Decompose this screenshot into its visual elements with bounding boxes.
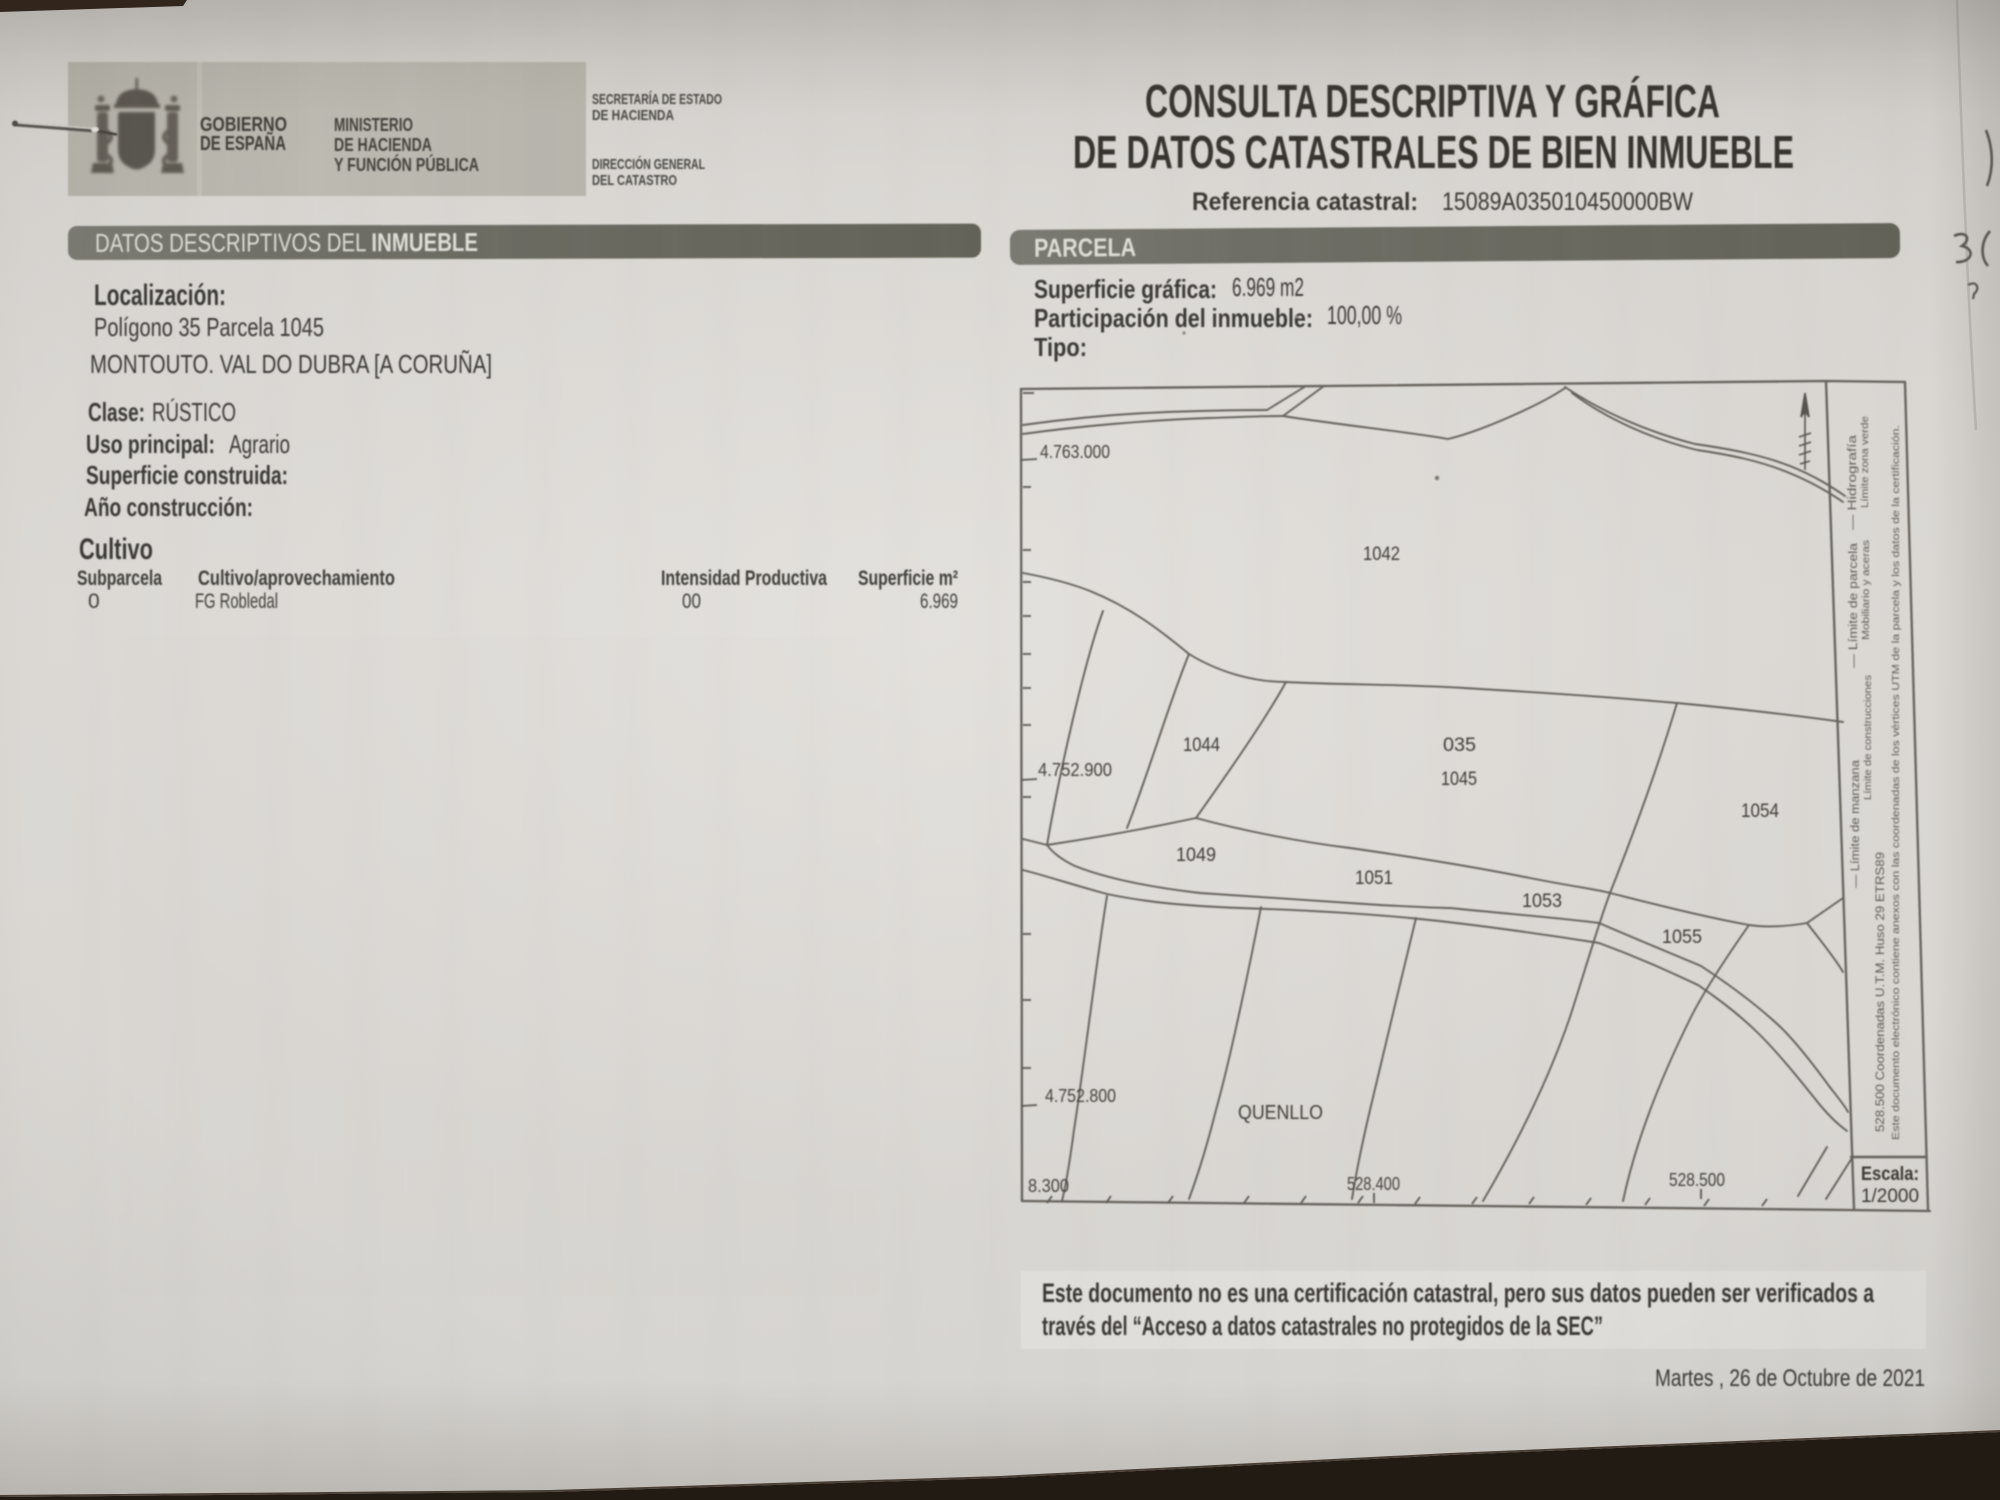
svg-text:MINISTERIO: MINISTERIO: [334, 115, 413, 135]
svg-text:1051: 1051: [1355, 868, 1393, 889]
svg-text:Subparcela: Subparcela: [77, 567, 162, 590]
svg-text:1044: 1044: [1183, 735, 1220, 756]
svg-text:1055: 1055: [1662, 927, 1702, 948]
svg-text:8.300: 8.300: [1028, 1176, 1069, 1196]
svg-text:4.752.900: 4.752.900: [1038, 760, 1112, 780]
svg-text:1042: 1042: [1363, 544, 1400, 565]
svg-text:6.969: 6.969: [920, 590, 958, 613]
svg-text:528.400: 528.400: [1347, 1174, 1400, 1194]
svg-text:DE HACIENDA: DE HACIENDA: [334, 135, 432, 155]
svg-text:— Hidrografía: — Hidrografía: [1847, 434, 1859, 530]
svg-text:Agrario: Agrario: [229, 429, 290, 459]
svg-text:Intensidad Productiva: Intensidad Productiva: [661, 567, 827, 590]
svg-text:4.752.800: 4.752.800: [1045, 1086, 1116, 1106]
svg-text:PARCELA: PARCELA: [1034, 232, 1136, 263]
svg-text:DATOS DESCRIPTIVOS DEL INMUEBL: DATOS DESCRIPTIVOS DEL INMUEBLE: [95, 227, 478, 258]
svg-text:035: 035: [1443, 735, 1476, 756]
svg-text:Este documento electrónico con: Este documento electrónico contiene anex…: [1890, 425, 1902, 1140]
svg-text:Superficie construida:: Superficie construida:: [86, 460, 288, 490]
svg-text:DIRECCIÓN GENERAL: DIRECCIÓN GENERAL: [592, 155, 705, 173]
svg-text:Referencia catastral:: Referencia catastral:: [1192, 188, 1418, 216]
svg-text:1054: 1054: [1741, 801, 1779, 822]
svg-text:QUENLLO: QUENLLO: [1238, 1102, 1323, 1124]
svg-text:Año construcción:: Año construcción:: [84, 492, 253, 522]
svg-text:1045: 1045: [1441, 769, 1477, 790]
svg-text:528.500 Coordenadas U.T.M. Hus: 528.500 Coordenadas U.T.M. Huso 29 ETRS8…: [1873, 852, 1887, 1132]
svg-text:Escala:: Escala:: [1861, 1164, 1919, 1185]
svg-text:100,00 %: 100,00 %: [1327, 300, 1402, 330]
svg-text:00: 00: [682, 590, 701, 613]
svg-text:Tipo:: Tipo:: [1034, 332, 1087, 362]
svg-text:1049: 1049: [1176, 845, 1216, 866]
svg-text:Y FUNCIÓN PÚBLICA: Y FUNCIÓN PÚBLICA: [334, 154, 479, 175]
svg-text:— Límite de manzana: — Límite de manzana: [1850, 759, 1862, 888]
svg-text:— Límite de parcela: — Límite de parcela: [1848, 542, 1860, 668]
svg-text:1053: 1053: [1522, 891, 1562, 912]
svg-text:MONTOUTO. VAL DO DUBRA [A CORU: MONTOUTO. VAL DO DUBRA [A CORUÑA]: [90, 349, 492, 379]
svg-text:6.969 m2: 6.969 m2: [1232, 272, 1304, 302]
svg-text:DE ESPAÑA: DE ESPAÑA: [200, 132, 286, 155]
svg-text:Uso principal:: Uso principal:: [86, 429, 215, 459]
svg-text:Martes , 26 de Octubre de 2021: Martes , 26 de Octubre de 2021: [1655, 1365, 1925, 1392]
svg-text:528.500: 528.500: [1669, 1170, 1725, 1190]
svg-text:Cultivo: Cultivo: [79, 533, 153, 566]
svg-text:Límite de construcciones: Límite de construcciones: [1863, 675, 1874, 800]
svg-text:Polígono 35 Parcela 1045: Polígono 35 Parcela 1045: [94, 312, 324, 342]
svg-text:Clase:: Clase:: [88, 397, 145, 427]
svg-text:Superficie m²: Superficie m²: [858, 567, 958, 590]
svg-text:0: 0: [88, 590, 100, 613]
svg-text:DE DATOS CATASTRALES DE BIEN I: DE DATOS CATASTRALES DE BIEN INMUEBLE: [1073, 126, 1794, 178]
svg-text:DEL CATASTRO: DEL CATASTRO: [592, 172, 677, 189]
svg-text:CONSULTA DESCRIPTIVA Y GRÁFICA: CONSULTA DESCRIPTIVA Y GRÁFICA: [1145, 75, 1720, 127]
svg-text:Cultivo/aprovechamiento: Cultivo/aprovechamiento: [198, 567, 395, 590]
svg-text:SECRETARÍA DE ESTADO: SECRETARÍA DE ESTADO: [592, 91, 722, 108]
svg-text:DE HACIENDA: DE HACIENDA: [592, 107, 674, 124]
svg-text:1/2000: 1/2000: [1861, 1186, 1919, 1207]
svg-text:Este documento no es una certi: Este documento no es una certificación c…: [1042, 1278, 1875, 1308]
svg-text:Límite zona verde: Límite zona verde: [1860, 416, 1871, 508]
svg-text:4.763.000: 4.763.000: [1040, 442, 1110, 462]
svg-text:Participación del inmueble:: Participación del inmueble:: [1034, 303, 1313, 333]
svg-text:FG Robledal: FG Robledal: [195, 590, 278, 613]
svg-text:Localización:: Localización:: [94, 279, 226, 312]
svg-text:Mobiliario y aceras: Mobiliario y aceras: [1861, 540, 1872, 640]
svg-text:Superficie gráfica:: Superficie gráfica:: [1034, 274, 1217, 304]
svg-text:RÚSTICO: RÚSTICO: [152, 397, 236, 427]
svg-text:través del “Acceso a datos cat: través del “Acceso a datos catastrales n…: [1042, 1311, 1603, 1341]
svg-text:15089A035010450000BW: 15089A035010450000BW: [1442, 188, 1693, 216]
